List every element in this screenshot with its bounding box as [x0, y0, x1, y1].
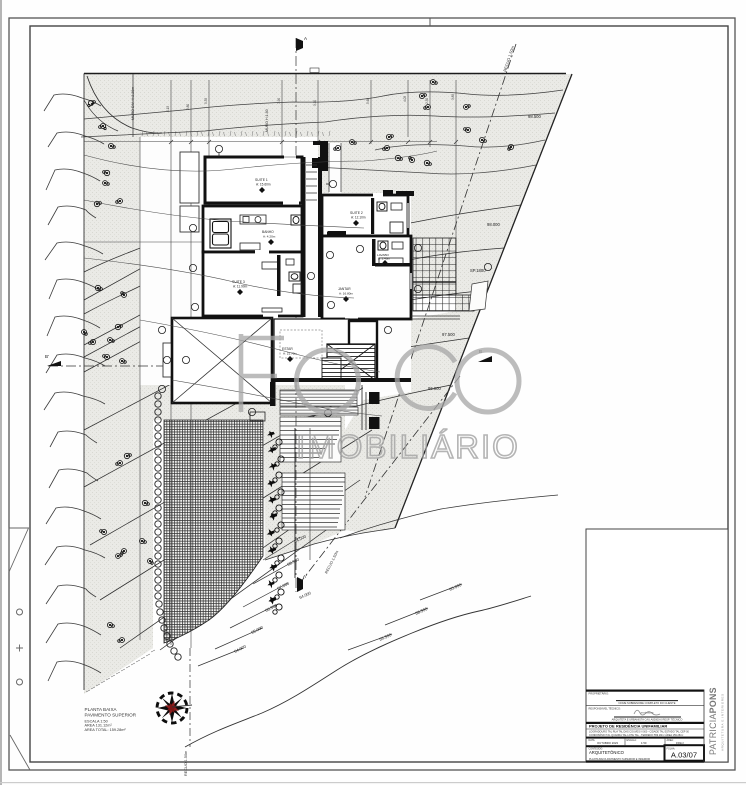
svg-text:SP.1800: SP.1800	[470, 268, 486, 273]
svg-text:A: A	[304, 36, 307, 41]
svg-text:PLANTA BAIXA PAVIMENTO SUPERIO: PLANTA BAIXA PAVIMENTO SUPERIOR E INFERI…	[589, 758, 650, 761]
svg-text:4.05: 4.05	[403, 96, 407, 102]
svg-text:ESCALA:: ESCALA:	[627, 739, 637, 742]
svg-text:5.35: 5.35	[204, 98, 208, 104]
svg-text:PATRICIAPONS: PATRICIAPONS	[708, 687, 718, 755]
svg-text:A': A'	[303, 574, 307, 579]
svg-text:A: 2.40m: A: 2.40m	[378, 257, 391, 261]
svg-text:assinatura: assinatura	[641, 711, 654, 715]
svg-text:MURO DIV. H:2.20m: MURO DIV. H:2.20m	[131, 87, 135, 120]
svg-text:A: 12.10m: A: 12.10m	[351, 216, 366, 220]
svg-text:BANHO: BANHO	[262, 230, 274, 234]
svg-text:A: 11.90m: A: 11.90m	[233, 285, 248, 289]
svg-text:OUTUBRO 2023: OUTUBRO 2023	[597, 741, 618, 745]
svg-text:3.85: 3.85	[451, 94, 455, 100]
svg-text:96.000: 96.000	[428, 386, 441, 391]
svg-text:PAVIMENTO SUPERIOR: PAVIMENTO SUPERIOR	[85, 713, 137, 718]
svg-text:2.80: 2.80	[186, 104, 190, 110]
svg-text:AREA TOTAL: 159.28m²: AREA TOTAL: 159.28m²	[85, 728, 127, 732]
svg-text:97.500: 97.500	[442, 332, 455, 337]
svg-text:4.15: 4.15	[166, 106, 170, 112]
svg-text:PROJETO DE RESIDÊNCIA UNIFAMIL: PROJETO DE RESIDÊNCIA UNIFAMILIAR	[589, 724, 667, 729]
svg-text:SUITE 1: SUITE 1	[255, 178, 268, 182]
svg-text:DATA:: DATA:	[589, 739, 596, 742]
svg-text:7.90: 7.90	[277, 98, 281, 104]
svg-text:ESTAR: ESTAR	[282, 347, 293, 351]
svg-text:RECUO 1.50m: RECUO 1.50m	[184, 751, 188, 776]
svg-text:5.60: 5.60	[366, 98, 370, 104]
svg-text:A.03/07: A.03/07	[671, 751, 697, 760]
svg-text:98.000: 98.000	[487, 222, 500, 227]
svg-text:98.500: 98.500	[528, 114, 541, 119]
svg-text:ÁREA:: ÁREA:	[667, 739, 675, 742]
svg-text:A: 15.60m: A: 15.60m	[256, 183, 271, 187]
svg-text:B': B'	[45, 354, 49, 359]
svg-text:IMOBILIÁRIO: IMOBILIÁRIO	[296, 428, 520, 465]
svg-text:A: 4.20m: A: 4.20m	[263, 235, 276, 239]
svg-text:JANTAR: JANTAR	[338, 287, 351, 291]
svg-text:PROPRIETÁRIO:: PROPRIETÁRIO:	[589, 692, 610, 696]
svg-text:CONDOMÍNIO TAL QUADRA TAL LOTE: CONDOMÍNIO TAL QUADRA TAL LOTE TAL - TER…	[589, 734, 683, 737]
svg-text:1:50: 1:50	[641, 741, 647, 745]
svg-text:A: 16.80m: A: 16.80m	[339, 292, 354, 296]
svg-text:ARQUITETURA E INTERIORES: ARQUITETURA E INTERIORES	[721, 693, 725, 751]
svg-text:A: 21.70m: A: 21.70m	[283, 352, 298, 356]
svg-text:2.30: 2.30	[425, 98, 429, 104]
svg-text:SUITE 2: SUITE 2	[350, 211, 363, 215]
svg-text:NOME SOBRENOME COMPLETO DO CLI: NOME SOBRENOME COMPLETO DO CLIENTE	[619, 701, 676, 705]
svg-text:PLANTA BAIXA: PLANTA BAIXA	[85, 707, 118, 712]
svg-text:ARQUITETÔNICO: ARQUITETÔNICO	[589, 750, 625, 755]
svg-text:3.10: 3.10	[313, 100, 317, 106]
svg-text:MURO H:1.80: MURO H:1.80	[265, 109, 269, 132]
